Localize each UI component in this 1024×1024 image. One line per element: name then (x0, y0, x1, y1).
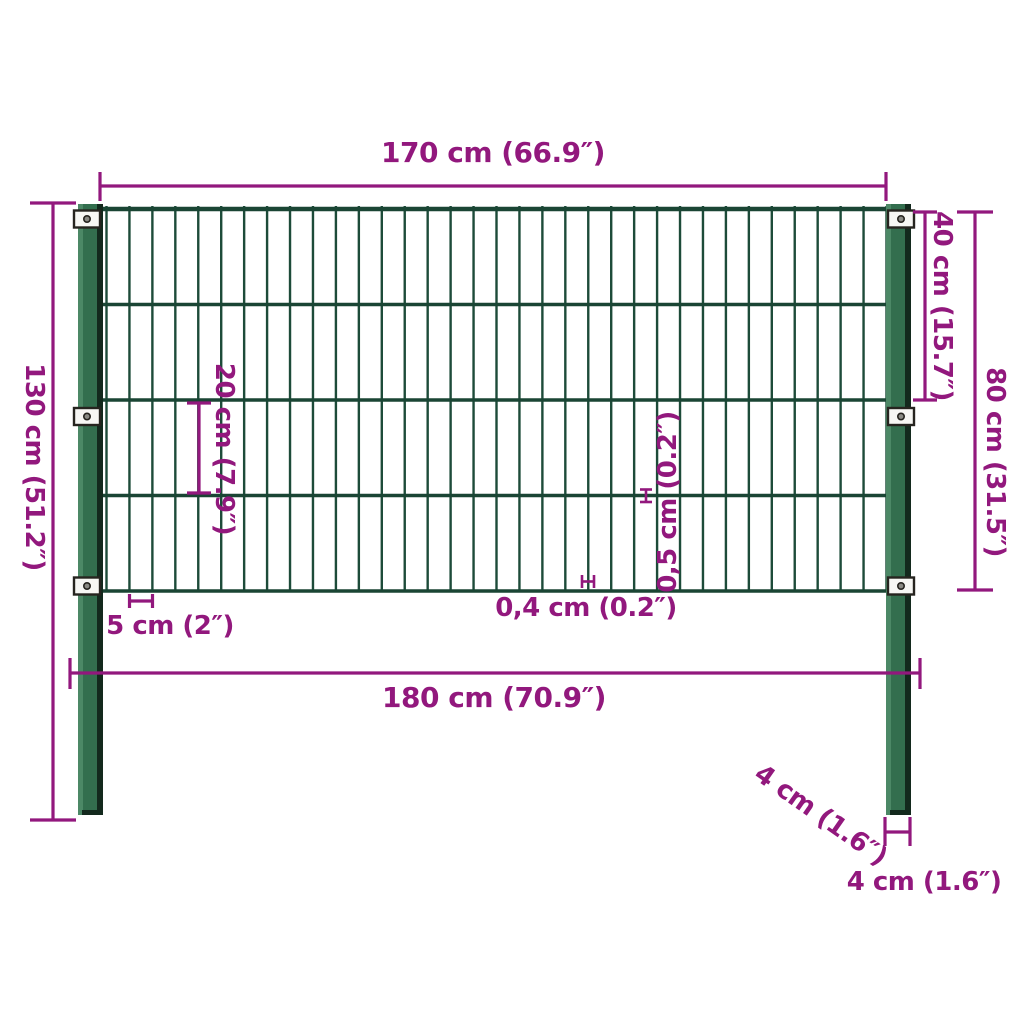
dim-post-width (885, 817, 910, 846)
screw-icon (898, 413, 904, 419)
dim-label-panel-height: 80 cm (31.5″) (980, 367, 1010, 557)
mounting-bracket (888, 578, 914, 595)
screw-icon (898, 583, 904, 589)
dim-label-horizontal-wire-thickness: 0,5 cm (0.2″) (653, 411, 683, 593)
dim-row-height (187, 403, 211, 493)
screw-icon (84, 216, 90, 222)
diagram-svg: 170 cm (66.9″)130 cm (51.2″)40 cm (15.7″… (0, 0, 1024, 1024)
dim-label-wire-spacing: 5 cm (2″) (106, 611, 234, 641)
mounting-bracket (888, 408, 914, 425)
dim-label-row-height: 20 cm (7.9″) (209, 363, 239, 535)
mounting-bracket (74, 408, 100, 425)
dim-label-vertical-wire-thickness: 0,4 cm (0.2″) (495, 593, 677, 623)
dim-panel-width (100, 172, 886, 201)
dim-wire-spacing (130, 594, 153, 608)
mounting-bracket (74, 211, 100, 228)
dim-label-post-depth: 4 cm (1.6″) (749, 759, 893, 872)
left-post (74, 204, 103, 815)
dim-label-total-width: 180 cm (70.9″) (382, 681, 606, 714)
dim-label-post-height: 130 cm (51.2″) (19, 363, 49, 570)
dim-label-post-width: 4 cm (1.6″) (847, 867, 1002, 897)
screw-icon (898, 216, 904, 222)
mounting-bracket (888, 211, 914, 228)
dim-label-upper-section: 40 cm (15.7″) (927, 211, 957, 401)
screw-icon (84, 413, 90, 419)
screw-icon (84, 583, 90, 589)
dim-label-panel-width: 170 cm (66.9″) (381, 136, 605, 169)
mounting-bracket (74, 578, 100, 595)
fence-dimension-diagram: 170 cm (66.9″)130 cm (51.2″)40 cm (15.7″… (0, 0, 1024, 1024)
right-post (886, 204, 914, 815)
dimension-annotations: 170 cm (66.9″)130 cm (51.2″)40 cm (15.7″… (19, 136, 1010, 897)
